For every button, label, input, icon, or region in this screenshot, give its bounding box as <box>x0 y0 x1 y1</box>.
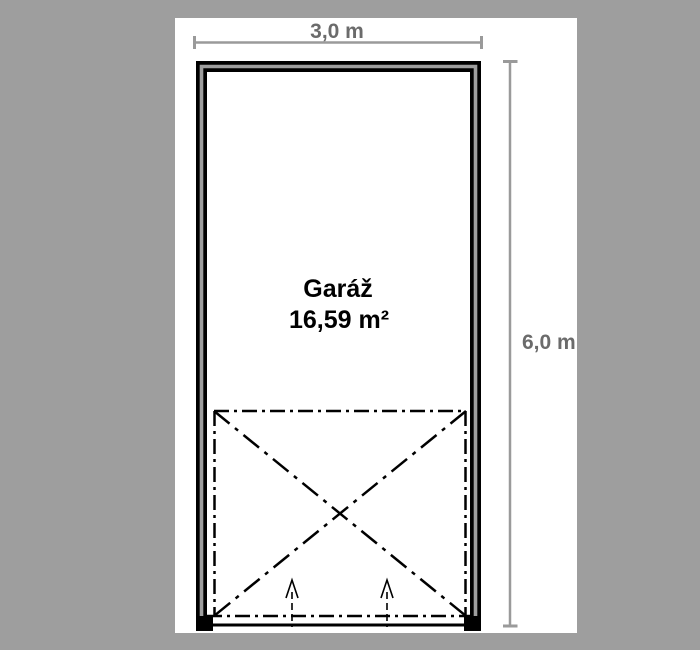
height-dimension-label: 6,0 m <box>522 331 576 354</box>
door-threshold-line <box>207 624 470 627</box>
room-area-label: 16,59 m² <box>289 306 389 334</box>
width-dimension-label: 3,0 m <box>310 20 364 43</box>
room-name-label: Garáž <box>303 275 372 303</box>
floor-plan-page: 3,0 m 6,0 m <box>0 0 700 650</box>
floor-plan-drawing: 3,0 m 6,0 m <box>0 0 700 650</box>
